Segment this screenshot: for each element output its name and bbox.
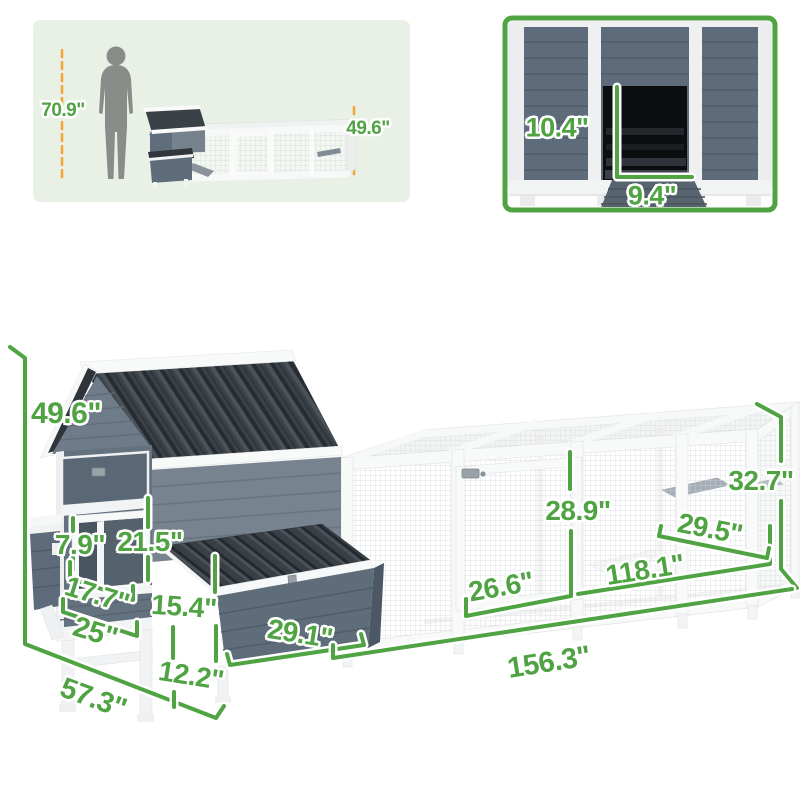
door-latch <box>462 469 479 478</box>
total-height-label: 49.6" <box>31 397 101 431</box>
product-dimension-diagram: 70.9" 49.6" 10.4" 9.4" 49.6" 7.9" 21.5" … <box>0 0 800 800</box>
person-height-label: 70.9" <box>41 100 85 122</box>
scale-panel <box>33 20 410 202</box>
illustration-canvas <box>0 0 800 800</box>
run-height-label: 32.7" <box>728 465 793 497</box>
nest-box-height-label: 15.4" <box>150 589 217 625</box>
run-door-height-label: 28.9" <box>545 495 610 527</box>
pop-door-width-label: 9.4" <box>628 181 676 212</box>
window-height-label: 7.9" <box>55 529 105 561</box>
scale-coop-height-label: 49.6" <box>346 118 390 140</box>
front-panel-height-label: 21.5" <box>117 526 182 558</box>
pop-door-height-label: 10.4" <box>526 113 589 144</box>
